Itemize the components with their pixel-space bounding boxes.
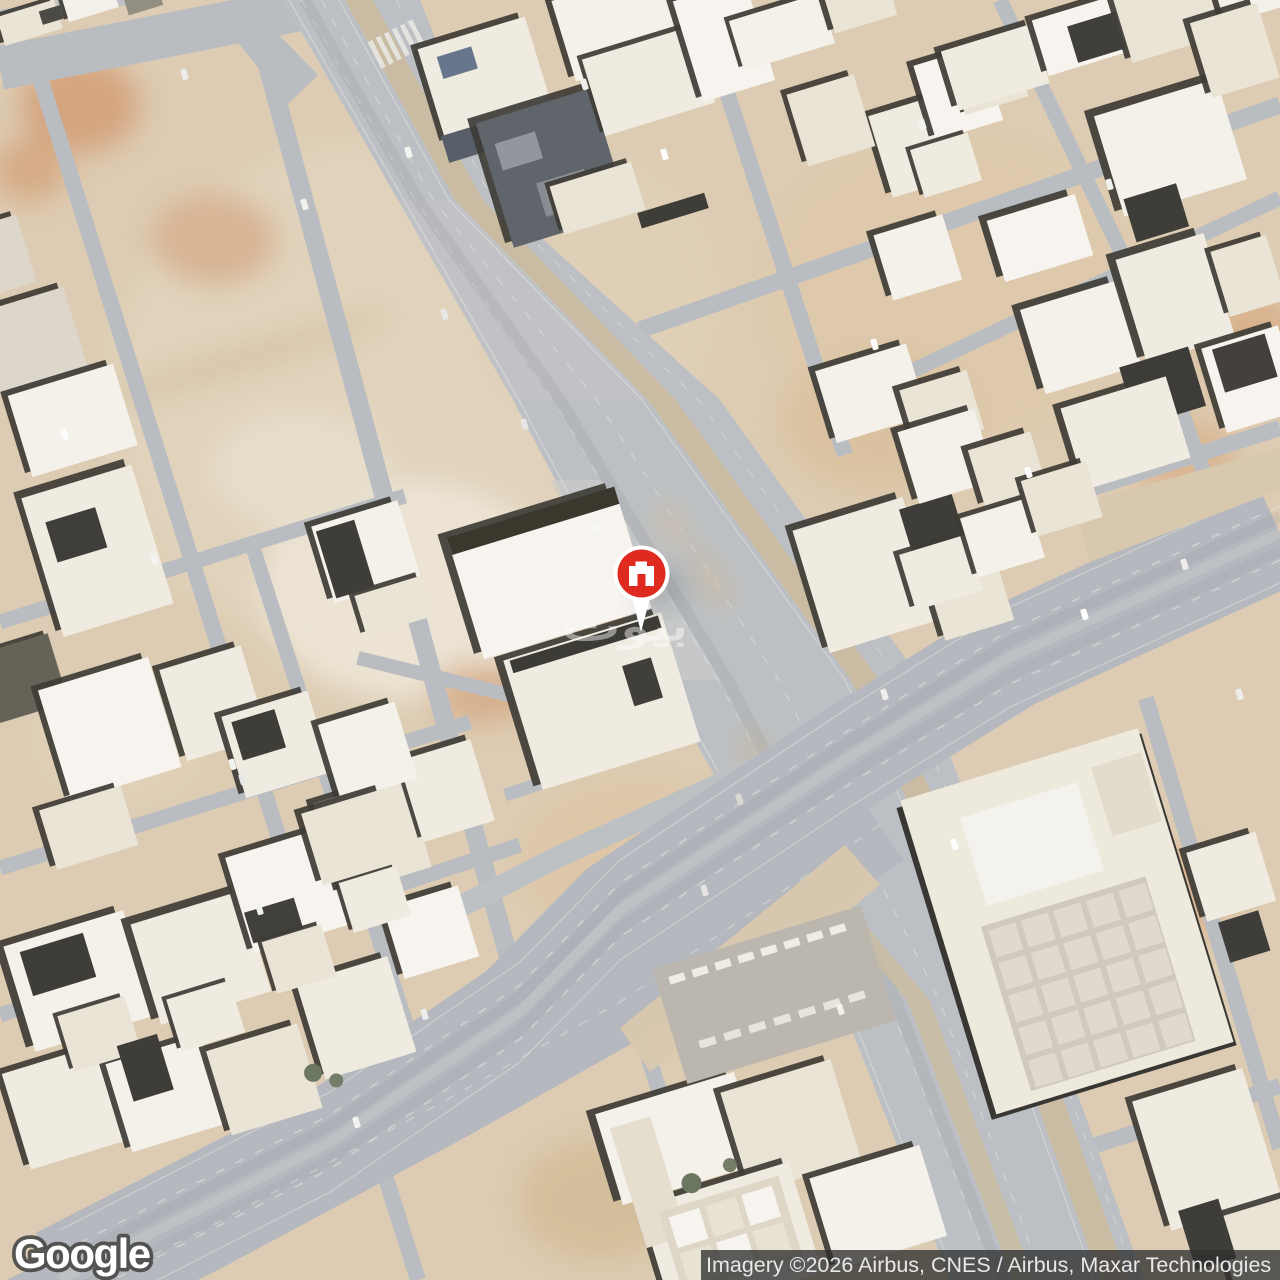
svg-text:بيوت: بيوت — [562, 605, 688, 651]
svg-text:Imagery ©2026 Airbus, CNES / A: Imagery ©2026 Airbus, CNES / Airbus, Max… — [706, 1253, 1271, 1277]
svg-text:Google: Google — [14, 1230, 150, 1277]
